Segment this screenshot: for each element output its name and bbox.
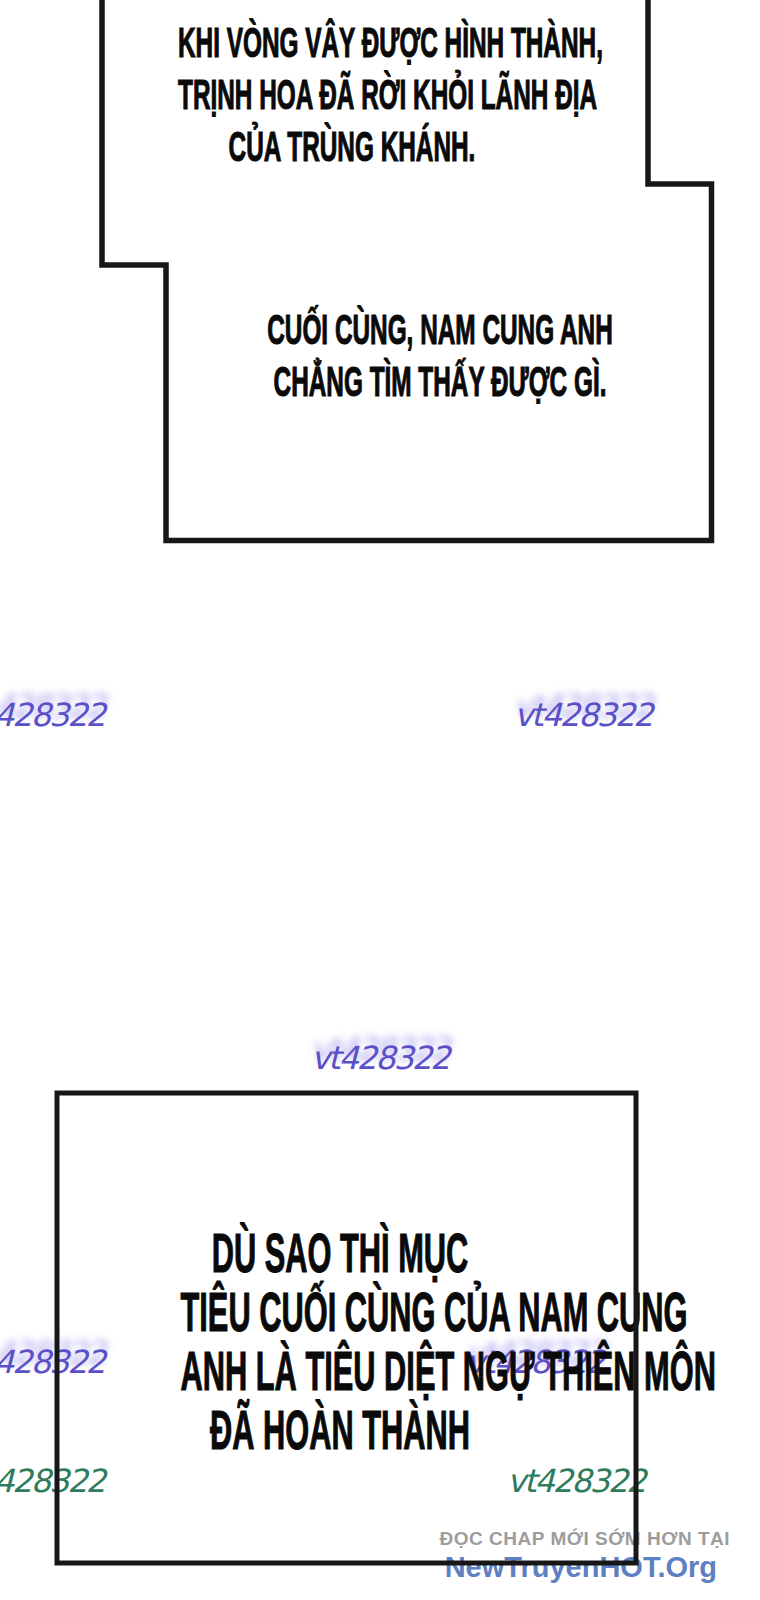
- watermark-center: vt428322: [311, 1041, 449, 1076]
- caption-line: DÙ SAO THÌ MỤC: [181, 1223, 500, 1282]
- top-panel-caption-2: CUỐI CÙNG, NAM CUNG ANH CHẲNG TÌM THẤY Đ…: [266, 304, 614, 408]
- caption-line: KHI VÒNG VÂY ĐƯỢC HÌNH THÀNH,: [178, 17, 526, 69]
- caption-line: ĐÃ HOÀN THÀNH: [181, 1400, 500, 1459]
- watermark-bottom-left: 428322: [0, 1464, 104, 1499]
- caption-line: TIÊU CUỐI CÙNG CỦA NAM CUNG: [181, 1282, 500, 1341]
- top-panel-caption-1: KHI VÒNG VÂY ĐƯỢC HÌNH THÀNH, TRỊNH HOA …: [178, 17, 526, 173]
- bottom-panel-caption: DÙ SAO THÌ MỤC TIÊU CUỐI CÙNG CỦA NAM CU…: [181, 1223, 500, 1459]
- caption-line: CHẲNG TÌM THẤY ĐƯỢC GÌ.: [266, 356, 614, 408]
- watermark-row1-right: vt428322: [514, 698, 652, 733]
- caption-line: ANH LÀ TIÊU DIỆT NGỰ THIÊN MÔN: [181, 1341, 500, 1400]
- caption-line: CUỐI CÙNG, NAM CUNG ANH: [266, 304, 614, 356]
- watermark-bottom-right: vt428322: [507, 1464, 645, 1499]
- comic-page: KHI VÒNG VÂY ĐƯỢC HÌNH THÀNH, TRỊNH HOA …: [0, 0, 760, 1600]
- footer-promo-text: ĐỌC CHAP MỚI SỚM HƠN TẠI: [440, 1528, 730, 1550]
- watermark-row1-left: 428322: [0, 698, 104, 733]
- caption-line: TRỊNH HOA ĐÃ RỜI KHỎI LÃNH ĐỊA: [178, 69, 526, 121]
- caption-line: CỦA TRÙNG KHÁNH.: [178, 121, 526, 173]
- footer-site-name: NewTruyenHOT.Org: [445, 1551, 717, 1584]
- watermark-mid-left: 428322: [0, 1345, 104, 1380]
